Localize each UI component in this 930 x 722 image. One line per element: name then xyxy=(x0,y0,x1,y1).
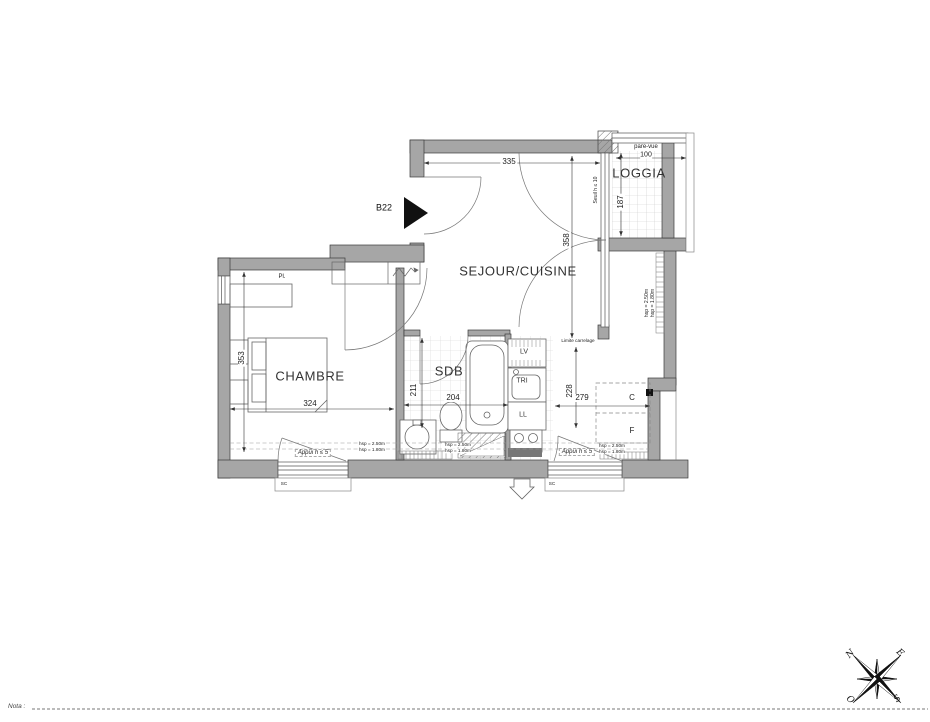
seuil-note: Seuil h ≤ 10 xyxy=(593,177,598,204)
hsp-low-mid: hsp = 1.80m xyxy=(359,448,385,453)
room-label-sejour: SEJOUR/CUISINE xyxy=(459,265,576,278)
placard-label: Pl. xyxy=(278,274,285,280)
washbasin xyxy=(405,425,429,449)
shutter-label-left: SC xyxy=(281,482,288,487)
down-arrow-icon xyxy=(510,479,534,499)
dim-187: 187 xyxy=(617,193,625,210)
appliance-lv: LV xyxy=(520,349,528,356)
hsp-low-right: hsp = 1.80m xyxy=(599,450,625,455)
pillow-2 xyxy=(252,374,266,402)
shutter-label-right: SC xyxy=(549,482,556,487)
toilet-bowl xyxy=(440,402,462,430)
dim-211: 211 xyxy=(410,382,418,399)
wall-entry-upper xyxy=(410,140,424,177)
dim-353: 353 xyxy=(238,349,246,366)
hsp-high-mid: hsp = 2.50m xyxy=(359,442,385,447)
wall-left-a xyxy=(218,258,230,276)
wall-bottom-c xyxy=(622,460,688,478)
dim-279: 279 xyxy=(573,394,590,402)
loggia-outer-edge xyxy=(686,133,694,252)
pillow-1 xyxy=(252,342,266,370)
hsp-high-sdb: hsp = 2.50m xyxy=(445,443,471,448)
chambre-furniture xyxy=(230,284,327,412)
entrance-arrow-icon xyxy=(404,197,428,229)
nightstand-2 xyxy=(230,380,248,404)
dim-335: 335 xyxy=(500,158,517,166)
loggia-door-arc-2 xyxy=(519,240,606,327)
appliance-tri: TRI xyxy=(516,378,527,385)
wall-sdb-top-a xyxy=(404,330,420,336)
window-right-swing xyxy=(554,436,558,461)
dim-204: 204 xyxy=(444,394,461,402)
duct-block xyxy=(646,389,653,396)
wall-loggia-bottom xyxy=(598,238,686,251)
hsp-low-vertical: hsp = 1.80m xyxy=(650,289,655,317)
appliance-ll: LL xyxy=(519,412,527,419)
pare-vue-label: pare-vue xyxy=(634,144,658,150)
bathtub-drain xyxy=(484,412,490,418)
wall-left-b xyxy=(218,304,230,478)
hsp-low-sdb: hsp = 1.80m xyxy=(445,449,471,454)
unit-label: B22 xyxy=(376,204,392,213)
counter-edge xyxy=(508,448,542,457)
wall-sdb-top-b xyxy=(468,330,510,336)
wall-top xyxy=(410,140,612,153)
wall-bottom-a xyxy=(218,460,278,478)
cf-dashed-zone xyxy=(596,383,650,443)
hsp-high-right: hsp = 2.50m xyxy=(599,444,625,449)
closet xyxy=(230,284,292,307)
window-chambre-left xyxy=(218,276,230,304)
kitchen-appliances xyxy=(508,339,546,452)
window-chambre-bottom xyxy=(278,462,348,475)
room-label-loggia: LOGGIA xyxy=(612,167,665,180)
sink-tap xyxy=(514,370,519,375)
entry-door-arc xyxy=(424,177,481,234)
floor-plan-page: B22 335 Seuil h ≤ 10 358 pare-vue 100 LO… xyxy=(0,0,930,722)
dim-324: 324 xyxy=(301,400,318,408)
floor-plan-drawing xyxy=(0,0,930,722)
room-label-chambre: CHAMBRE xyxy=(275,370,344,383)
dim-358: 358 xyxy=(563,231,571,248)
wall-bottom-b xyxy=(348,460,548,478)
wall-loggia-right xyxy=(662,143,674,238)
room-label-sdb: SDB xyxy=(435,365,464,378)
wall-right-upper xyxy=(664,250,676,385)
appui-note-left: Appui h ≤ 5 xyxy=(295,449,331,457)
appui-note-right: Appui h ≤ 5 xyxy=(559,448,595,456)
window-sejour-bottom xyxy=(548,462,622,475)
appliance-c: C xyxy=(629,394,635,402)
washbasin-tap xyxy=(413,420,421,425)
appliance-f: F xyxy=(630,427,635,435)
dim-100: 100 xyxy=(640,152,652,159)
hsp-high-vertical: hsp = 2.50m xyxy=(644,289,649,317)
nota-label: Nota : xyxy=(8,703,25,710)
shutter-box-right xyxy=(545,478,624,491)
window-left-swing xyxy=(278,438,282,461)
limite-carrelage-note: Limite carrelage xyxy=(561,339,594,344)
wall-chambre-top xyxy=(218,258,345,270)
